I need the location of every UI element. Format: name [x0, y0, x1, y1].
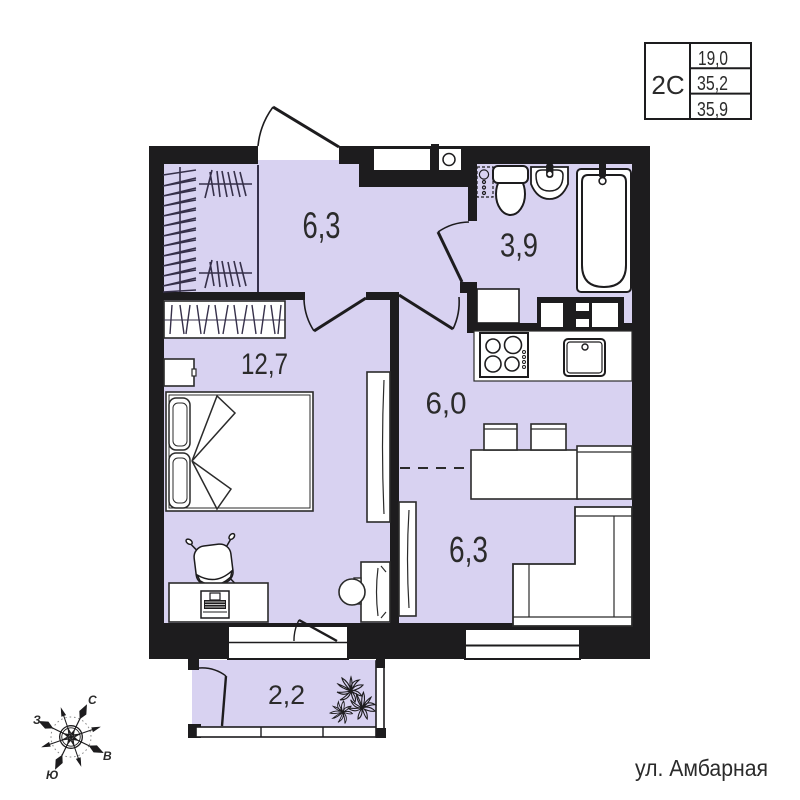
- svg-text:12,7: 12,7: [241, 348, 288, 381]
- svg-text:3,9: 3,9: [500, 228, 538, 265]
- svg-text:Ю: Ю: [46, 768, 59, 782]
- svg-text:35,2: 35,2: [697, 72, 728, 95]
- svg-text:2,2: 2,2: [268, 680, 305, 710]
- svg-text:З: З: [33, 713, 41, 727]
- svg-text:19,0: 19,0: [698, 47, 728, 70]
- svg-text:6,0: 6,0: [426, 386, 467, 421]
- svg-text:35,9: 35,9: [697, 98, 728, 121]
- svg-text:ул. Амбарная: ул. Амбарная: [635, 755, 768, 781]
- svg-text:6,3: 6,3: [449, 529, 488, 570]
- svg-text:В: В: [103, 749, 112, 763]
- svg-text:2C: 2C: [651, 70, 684, 100]
- svg-text:6,3: 6,3: [303, 205, 341, 246]
- svg-text:С: С: [88, 693, 97, 707]
